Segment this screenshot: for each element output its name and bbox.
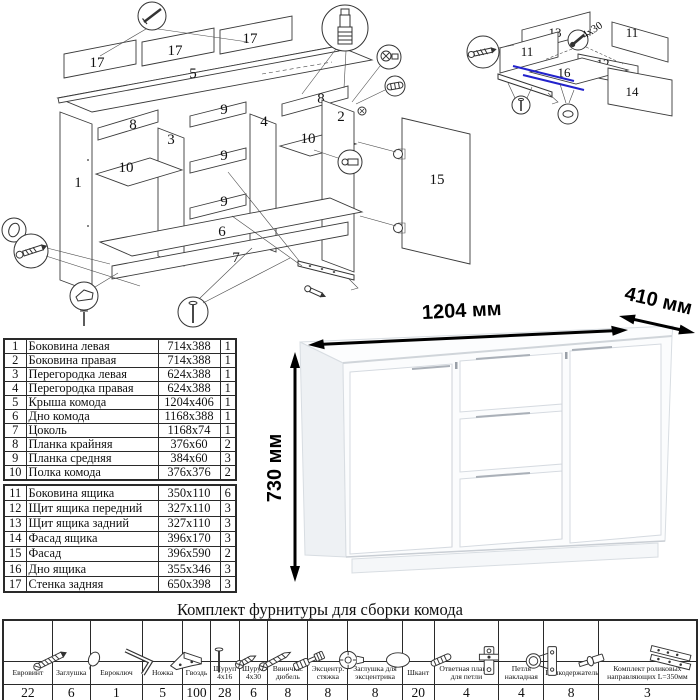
part-label-10b: 10 — [301, 131, 316, 147]
part-qty: 3 — [220, 577, 236, 593]
part-label-4: 4 — [260, 114, 268, 130]
part-num: 8 — [4, 438, 26, 452]
hardware-quantity: 20 — [402, 685, 434, 700]
part-name: Полка комода — [26, 466, 158, 481]
part-label-14: 14 — [626, 84, 640, 99]
part-num: 2 — [4, 354, 26, 368]
part-size: 350x110 — [158, 485, 220, 501]
hardware-quantity: 6 — [239, 685, 268, 700]
drawer-rails: 9 9 9 — [190, 102, 246, 219]
part-size: 376x60 — [158, 438, 220, 452]
hardware-quantity: 8 — [268, 685, 308, 700]
parts-list: 1Боковина левая714x38812Боковина правая7… — [3, 338, 239, 593]
screw-in-dowel-icon — [288, 641, 308, 662]
height-dimension-label: 730 мм — [264, 434, 286, 503]
part-name: Крыша комода — [26, 396, 158, 410]
part-size: 1168x74 — [158, 424, 220, 438]
hardware-quantity: 4 — [499, 685, 544, 700]
part-label-2: 2 — [337, 109, 345, 125]
right-door — [570, 344, 661, 543]
part-num: 12 — [4, 501, 26, 516]
part-qty: 6 — [220, 485, 236, 501]
roller-slides-icon — [647, 641, 693, 662]
part-num: 9 — [4, 452, 26, 466]
eccentric-cam-icon — [328, 641, 348, 662]
part-row: 14Фасад ящика396x1703 — [4, 531, 236, 546]
hardware-kit-title: Комплект фурнитуры для сборки комода — [0, 600, 640, 620]
foot-icon — [163, 641, 183, 662]
hardware-quantity: 3 — [598, 685, 697, 700]
hardware-quantity: 4 — [434, 685, 499, 700]
part-row: 15Фасад396x5902 — [4, 546, 236, 561]
part-row: 7Цоколь1168x741 — [4, 424, 236, 438]
part-qty: 1 — [220, 396, 236, 410]
part-num: 15 — [4, 546, 26, 561]
part-row: 13Щит ящика задний327x1103 — [4, 516, 236, 531]
part-qty: 1 — [220, 424, 236, 438]
part-size: 327x110 — [158, 516, 220, 531]
drawer-2 — [460, 411, 562, 472]
part-size: 355x346 — [158, 562, 220, 577]
part-label-1: 1 — [74, 175, 82, 191]
parts-table-lower: 11Боковина ящика350x110612Щит ящика пере… — [3, 484, 237, 593]
part-label-9a: 9 — [220, 102, 228, 118]
part-qty: 3 — [220, 501, 236, 516]
part-size: 1168x388 — [158, 410, 220, 424]
dresser-fronts — [350, 344, 661, 554]
hardware-kit-table: ЕвровинтЗаглушкаЕвроключНожкаГвоздьШуруп… — [2, 619, 698, 700]
part-row: 1Боковина левая714x3881 — [4, 339, 236, 354]
part-row: 16Дно ящика355x3463 — [4, 562, 236, 577]
part-qty: 3 — [220, 516, 236, 531]
cap-callout — [558, 104, 578, 124]
part-num: 5 — [4, 396, 26, 410]
hardware-quantity: 8 — [348, 685, 402, 700]
part-size: 327x110 — [158, 501, 220, 516]
part-row: 3Перегородка левая624x3881 — [4, 368, 236, 382]
drawer-1 — [460, 353, 562, 412]
part-qty: 2 — [220, 466, 236, 481]
part-qty: 3 — [220, 562, 236, 577]
hardware-quantity: 6 — [52, 685, 90, 700]
part-label-3: 3 — [167, 132, 175, 148]
part-size: 714x388 — [158, 354, 220, 368]
part-name: Фасад — [26, 546, 158, 561]
part-qty: 2 — [220, 546, 236, 561]
part-label-7: 7 — [232, 250, 240, 266]
left-door — [350, 364, 452, 554]
part-name: Боковина правая — [26, 354, 158, 368]
drawer-3 — [460, 471, 562, 547]
dresser-dimension-drawing: 1204 мм 410 мм 730 мм — [262, 288, 700, 600]
part-name: Цоколь — [26, 424, 158, 438]
part-num: 6 — [4, 410, 26, 424]
part-label-11a: 11 — [521, 44, 534, 59]
part-label-9b: 9 — [220, 148, 228, 164]
screw-large-icon — [253, 641, 267, 662]
hinge-plate-icon — [466, 641, 498, 662]
cap-icon — [563, 111, 573, 117]
hardware-quantity: 8 — [308, 685, 348, 700]
part-num: 10 — [4, 466, 26, 481]
hardware-quantities-row: 22615100286888204483 — [3, 685, 697, 700]
part-label-17c: 17 — [243, 31, 259, 47]
eccentric-cam-icon — [358, 107, 366, 115]
part-label-6: 6 — [218, 224, 226, 240]
right-side-panel: 2 — [322, 100, 366, 272]
part-name: Дно комода — [26, 410, 158, 424]
part-label-10a: 10 — [119, 160, 134, 176]
part-num: 11 — [4, 485, 26, 501]
part-label-8a: 8 — [129, 117, 137, 133]
width-dimension-label: 1204 мм — [421, 298, 502, 324]
part-name: Стенка задняя — [26, 577, 158, 593]
part-label-11b: 11 — [626, 25, 639, 40]
drawer-assembly-diagram: 13 11 11 12 16 14 — [460, 0, 700, 135]
part-name: Перегородка левая — [26, 368, 158, 382]
nail-icon — [196, 641, 210, 662]
door-panel: 15 — [358, 118, 470, 264]
part-row: 11Боковина ящика350x1106 — [4, 485, 236, 501]
hardware-quantity: 22 — [3, 685, 52, 700]
height-dimension: 730 мм — [264, 352, 300, 582]
part-name: Дно ящика — [26, 562, 158, 577]
hardware-quantity: 8 — [544, 685, 598, 700]
cap-icon — [71, 641, 90, 662]
part-name: Щит ящика передний — [26, 501, 158, 516]
part-qty: 2 — [220, 438, 236, 452]
part-row: 17Стенка задняя650x3983 — [4, 577, 236, 593]
left-side-panel: 1 — [60, 112, 92, 292]
cam-cap-icon — [375, 641, 402, 662]
hardware-quantity: 28 — [210, 685, 239, 700]
part-size: 384x60 — [158, 452, 220, 466]
dowel-callout — [356, 76, 405, 104]
part-size: 396x170 — [158, 531, 220, 546]
part-num: 16 — [4, 562, 26, 577]
part-num: 4 — [4, 382, 26, 396]
part-num: 17 — [4, 577, 26, 593]
screw-small-icon — [225, 641, 239, 662]
shelf-support-icon — [571, 641, 598, 662]
part-label-15: 15 — [430, 172, 445, 188]
part-row: 8Планка крайняя376x602 — [4, 438, 236, 452]
hardware-quantity: 100 — [183, 685, 211, 700]
part-num: 7 — [4, 424, 26, 438]
part-row: 9Планка средняя384x603 — [4, 452, 236, 466]
assembly-instruction-sheet: 17 17 17 5 1 3 — [0, 0, 700, 700]
part-size: 1204x406 — [158, 396, 220, 410]
part-name: Планка средняя — [26, 452, 158, 466]
confirmat-screw-icon — [28, 641, 52, 662]
part-name: Планка крайняя — [26, 438, 158, 452]
part-row: 4Перегородка правая624x3881 — [4, 382, 236, 396]
part-name: Боковина ящика — [26, 485, 158, 501]
part-num: 3 — [4, 368, 26, 382]
part-qty: 1 — [220, 354, 236, 368]
part-qty: 1 — [220, 382, 236, 396]
part-qty: 3 — [220, 531, 236, 546]
part-qty: 3 — [220, 452, 236, 466]
part-name: Щит ящика задний — [26, 516, 158, 531]
part-size: 714x388 — [158, 339, 220, 354]
shelf-support-icon — [342, 159, 358, 165]
part-name: Перегородка правая — [26, 382, 158, 396]
hardware-icon-cell — [3, 620, 52, 662]
part-size: 376x376 — [158, 466, 220, 481]
part-row: 10Полка комода376x3762 — [4, 466, 236, 481]
part-row: 12Щит ящика передний327x1103 — [4, 501, 236, 516]
part-size: 624x388 — [158, 382, 220, 396]
part-qty: 1 — [220, 410, 236, 424]
dowel-icon — [418, 641, 434, 662]
hinge-icon — [521, 641, 544, 662]
part-row: 5Крыша комода1204x4061 — [4, 396, 236, 410]
part-row: 6Дно комода1168x3881 — [4, 410, 236, 424]
part-label-5: 5 — [189, 66, 197, 82]
part-size: 650x398 — [158, 577, 220, 593]
part-size: 396x590 — [158, 546, 220, 561]
part-label-17a: 17 — [90, 55, 106, 71]
part-num: 14 — [4, 531, 26, 546]
part-label-17b: 17 — [168, 43, 184, 59]
part-qty: 1 — [220, 339, 236, 354]
roller-slide-detail — [498, 74, 558, 114]
hardware-icons-row — [3, 620, 697, 662]
part-num: 13 — [4, 516, 26, 531]
part-num: 1 — [4, 339, 26, 354]
part-row: 2Боковина правая714x3881 — [4, 354, 236, 368]
part-name: Боковина левая — [26, 339, 158, 354]
parts-table-upper: 1Боковина левая714x38812Боковина правая7… — [3, 338, 237, 481]
hardware-quantity: 1 — [90, 685, 142, 700]
part-qty: 1 — [220, 368, 236, 382]
part-label-9c: 9 — [220, 194, 228, 210]
hex-key-icon — [116, 641, 142, 662]
part-size: 624x388 — [158, 368, 220, 382]
hardware-quantity: 5 — [143, 685, 183, 700]
part-name: Фасад ящика — [26, 531, 158, 546]
